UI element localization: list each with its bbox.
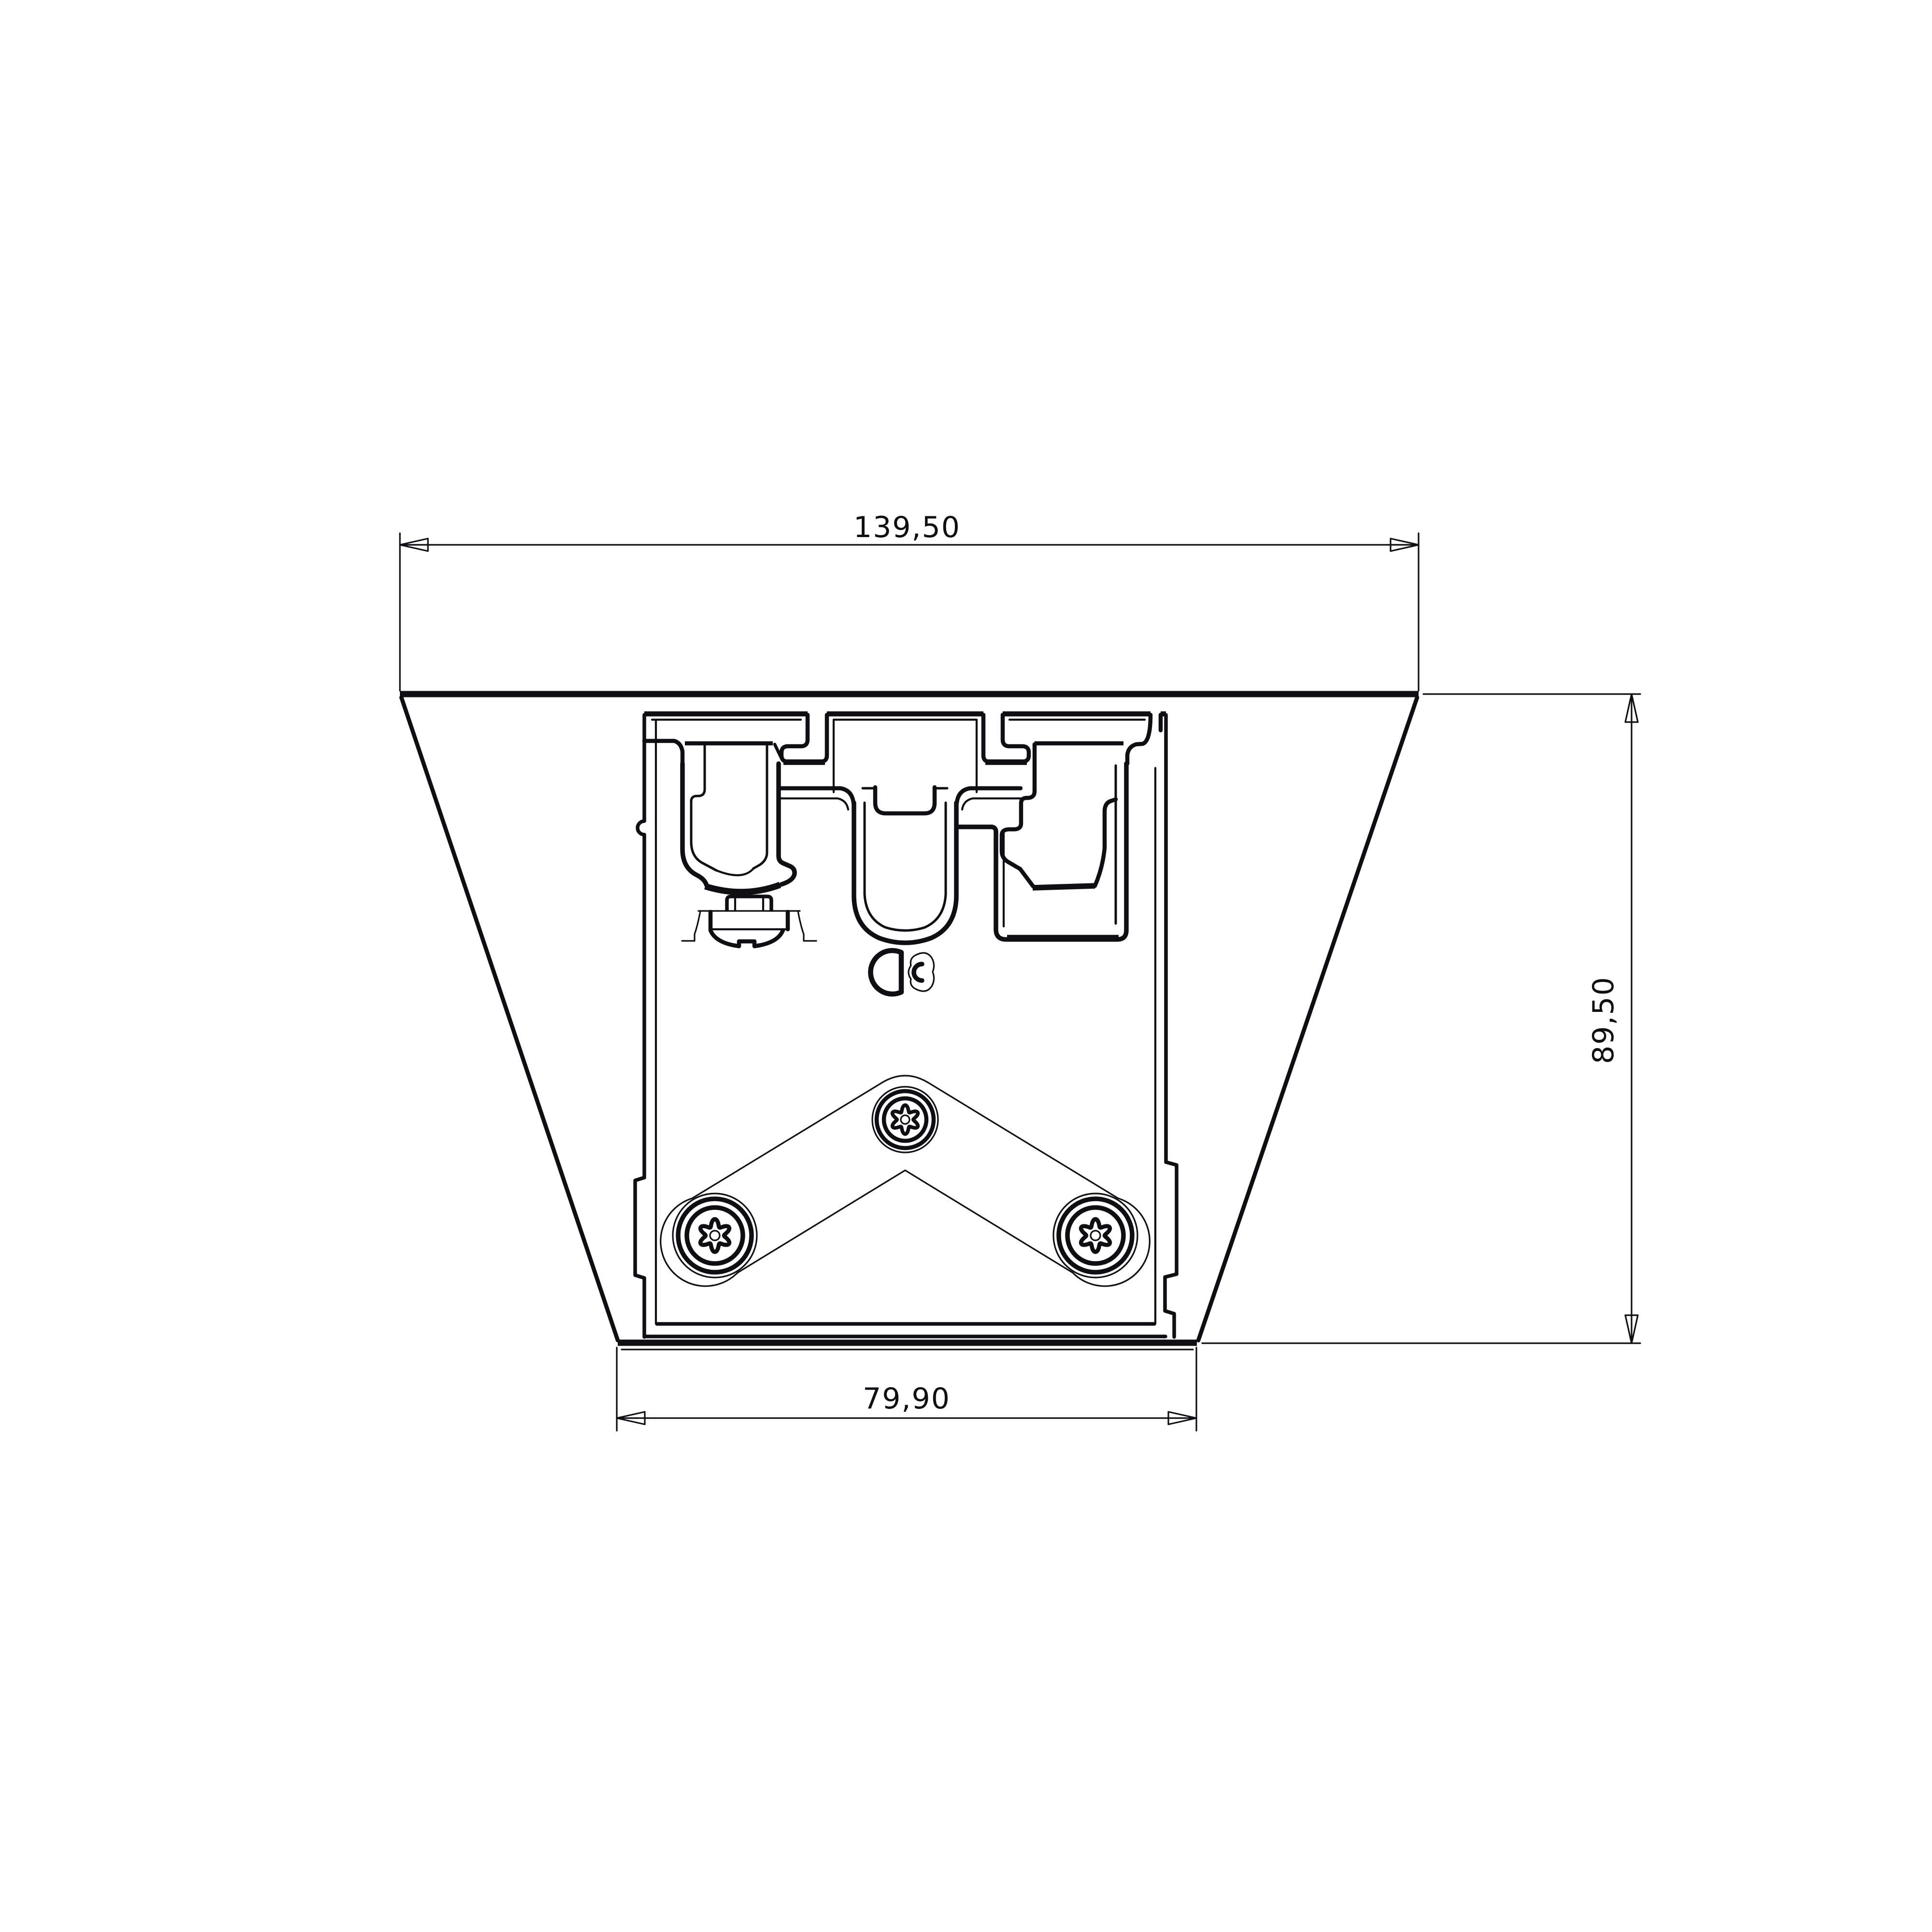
right-claw-bowl-bottom bbox=[1033, 886, 1095, 888]
set-screw-stem-lines bbox=[735, 898, 763, 910]
outer-profile-left-slant bbox=[401, 697, 618, 1340]
outer-profile-right-slant bbox=[1198, 697, 1417, 1340]
torx-screw-left-ring-inner bbox=[687, 1207, 743, 1264]
outer-profile bbox=[400, 694, 1419, 1350]
torx-screw-right bbox=[1053, 1193, 1137, 1278]
dimension-bottom-width: 79,90 bbox=[617, 1348, 1196, 1431]
center-hook bbox=[779, 787, 1021, 943]
torx-screw-left-star-icon bbox=[700, 1219, 729, 1252]
set-screw-cap bbox=[727, 896, 771, 910]
keyhole-d-shape bbox=[870, 951, 901, 994]
torx-screw-right-star-icon bbox=[1081, 1219, 1110, 1252]
left-claw-outer-left-wall bbox=[682, 764, 707, 885]
set-screw-flange-sides bbox=[710, 912, 788, 929]
rail-right-stub-ledge bbox=[1127, 715, 1161, 764]
rail-left-stub-ledge bbox=[644, 741, 682, 764]
back-plate-right-edge bbox=[1165, 715, 1177, 1337]
left-claw-foot bbox=[705, 885, 780, 892]
torx-screw-right-pin bbox=[1091, 1231, 1100, 1240]
left-claw-inner-bowl-arc bbox=[716, 868, 753, 875]
back-plate-left-edge bbox=[635, 715, 644, 1337]
center-hook-outer-wall bbox=[854, 803, 956, 943]
torx-screw-left-ring-outer bbox=[678, 1199, 752, 1272]
left-claw-outer-right-wall bbox=[779, 764, 795, 884]
rail-t-slot-right bbox=[983, 715, 1029, 762]
set-screw-dome bbox=[710, 930, 783, 946]
left-claw bbox=[682, 743, 795, 892]
extension-lines bbox=[1202, 694, 1640, 1343]
left-claw-inner-right-wall bbox=[753, 743, 767, 868]
keyhole-slot bbox=[870, 951, 934, 994]
dimension-right-height-label: 89,50 bbox=[1587, 976, 1620, 1064]
set-screw-spring-skirts bbox=[682, 911, 816, 941]
set-screw bbox=[682, 896, 816, 946]
torx-screw-right-ring-outer bbox=[1059, 1199, 1132, 1272]
center-hook-tab bbox=[875, 787, 935, 813]
rail-center-block-inner-walls bbox=[834, 720, 977, 792]
center-hook-inner-wall bbox=[865, 803, 946, 931]
torx-screw-right-ring-inner bbox=[1067, 1207, 1123, 1264]
center-hook-left-wing-inner bbox=[779, 798, 848, 810]
torx-screw-center-pin bbox=[901, 1115, 909, 1124]
center-hook-right-wing-inner bbox=[962, 798, 1021, 810]
back-plate bbox=[635, 715, 1177, 1337]
rail-t-slot-left bbox=[781, 715, 827, 762]
dimension-top-width: 139,50 bbox=[400, 511, 1419, 691]
torx-screw-center bbox=[872, 1087, 938, 1152]
torx-screw-center-star-icon bbox=[893, 1105, 918, 1134]
dimension-top-width-label: 139,50 bbox=[853, 511, 961, 544]
drawing-canvas: 139,50 89,50 79,90 bbox=[0, 0, 1932, 1932]
left-claw-inner-left-wall bbox=[691, 743, 716, 870]
dimension-right-height: 89,50 bbox=[1202, 694, 1640, 1343]
mounting-rail bbox=[644, 714, 1166, 792]
right-claw bbox=[958, 743, 1126, 939]
keyhole-crescent-notch bbox=[914, 964, 922, 980]
right-claw-bowl-left bbox=[1020, 869, 1033, 886]
technical-drawing: 139,50 89,50 79,90 bbox=[0, 0, 1932, 1932]
extension-lines bbox=[400, 533, 1419, 691]
torx-screw-left-pin bbox=[710, 1231, 720, 1240]
right-claw-bowl-right bbox=[1095, 799, 1116, 886]
torx-screw-left bbox=[673, 1193, 757, 1278]
dimension-bottom-width-label: 79,90 bbox=[863, 1382, 951, 1416]
